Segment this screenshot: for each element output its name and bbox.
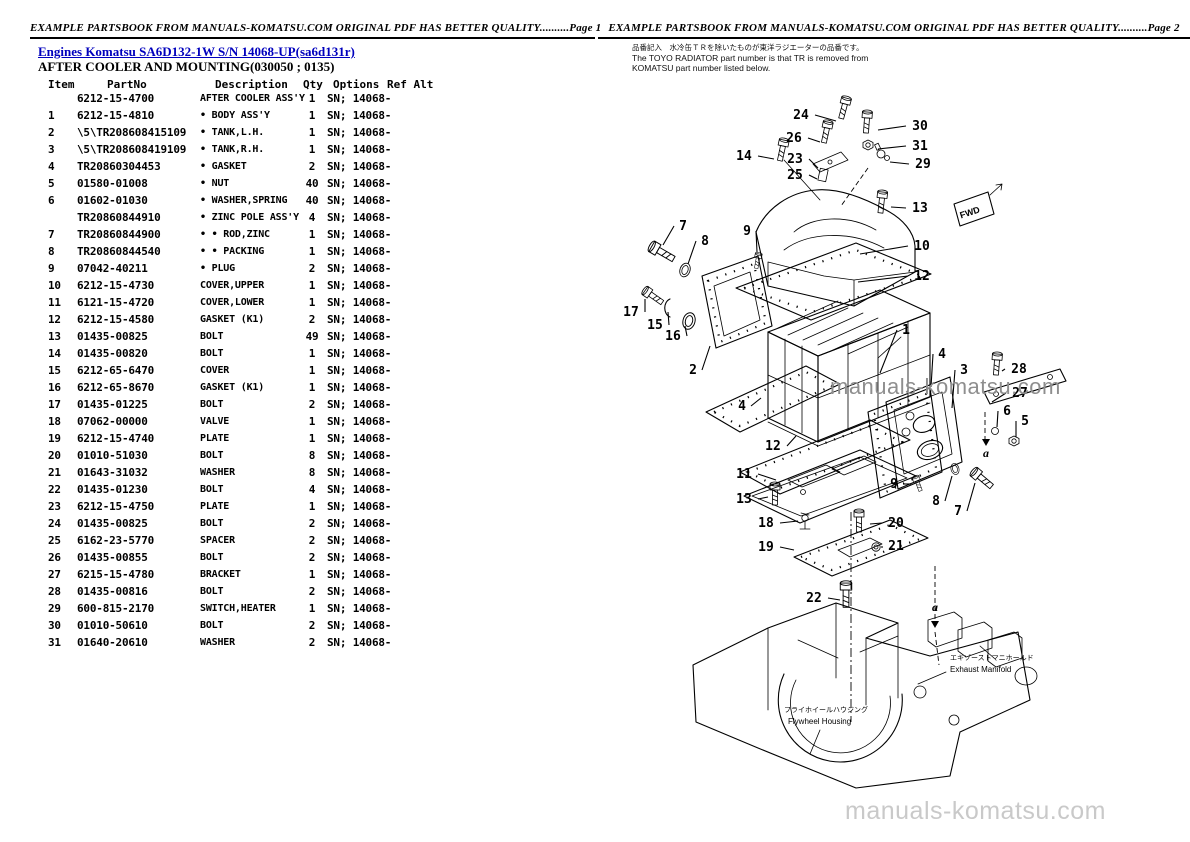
right-page: EXAMPLE PARTSBOOK FROM MANUALS-KOMATSU.C… [598,22,1190,39]
callout-4: 4 [938,347,946,362]
row-item-number: 17 [48,398,61,411]
callout-leader-line [858,276,908,282]
row-qty: 1 [302,381,322,394]
table-row: TR20860844910 • ZINC POLE ASS'Y 4 SN; 14… [30,209,595,226]
left-page-header: EXAMPLE PARTSBOOK FROM MANUALS-KOMATSU.C… [30,22,595,39]
callout-leader-line [997,411,998,427]
diagram-gasket-left [706,366,840,432]
row-description: BOLT [200,620,223,631]
row-qty: 1 [302,228,322,241]
callout-20: 20 [888,516,904,531]
callout-leader-line [1002,369,1005,371]
callout-leader-line [890,162,909,164]
row-options: SN; 14068- [327,92,391,105]
row-qty: 2 [302,398,322,411]
a-marker-arrow [931,621,939,628]
row-item-number: 3 [48,143,54,156]
row-description: • ZINC POLE ASS'Y [200,212,299,223]
row-options: SN; 14068- [327,245,391,258]
table-row: 12 6212-15-4580 GASKET (K1) 2 SN; 14068- [30,311,595,328]
table-row: 3 \5\TR208608419109 • TANK,R.H. 1 SN; 14… [30,141,595,158]
row-part-number: 6215-15-4780 [77,568,154,581]
row-description: BOLT [200,552,223,563]
row-part-number: 01435-00820 [77,347,148,360]
right-page-header: EXAMPLE PARTSBOOK FROM MANUALS-KOMATSU.C… [598,22,1190,39]
row-part-number: 01010-50610 [77,619,148,632]
row-qty: 4 [302,483,322,496]
row-description: BOLT [200,484,223,495]
row-item-number: 25 [48,534,61,547]
row-part-number: TR20860844910 [77,211,161,224]
table-row: 11 6121-15-4720 COVER,LOWER 1 SN; 14068- [30,294,595,311]
row-part-number: 01435-00825 [77,517,148,530]
row-qty: 40 [302,177,322,190]
row-part-number: 01580-01008 [77,177,148,190]
row-description: COVER,LOWER [200,297,264,308]
row-options: SN; 14068- [327,449,391,462]
table-row: 21 01643-31032 WASHER 8 SN; 14068- [30,464,595,481]
row-part-number: 07042-40211 [77,262,148,275]
row-description: AFTER COOLER ASS'Y [200,93,305,104]
callout-24: 24 [793,108,809,123]
row-part-number: TR20860844540 [77,245,161,258]
row-item-number: 23 [48,500,61,513]
row-description: • • PACKING [200,246,264,257]
row-qty: 1 [302,109,322,122]
row-options: SN; 14068- [327,330,391,343]
callout-leader-line [809,175,817,179]
callout-25: 25 [787,168,803,183]
callout-leader-line [663,226,674,245]
table-row: 9 07042-40211 • PLUG 2 SN; 14068- [30,260,595,277]
row-part-number: \5\TR208608419109 [77,143,186,156]
row-part-number: 01010-51030 [77,449,148,462]
table-row: 5 01580-01008 • NUT 40 SN; 14068- [30,175,595,192]
diagram-gasket-upper [736,243,931,320]
row-item-number: 29 [48,602,61,615]
row-part-number: 6212-15-4750 [77,500,154,513]
callout-23: 23 [787,152,803,167]
callout-leader-line [702,346,710,370]
row-description: • NUT [200,178,229,189]
table-row: 24 01435-00825 BOLT 2 SN; 14068- [30,515,595,532]
table-row: 28 01435-00816 BOLT 2 SN; 14068- [30,583,595,600]
row-description: • TANK,R.H. [200,144,264,155]
row-part-number: 6162-23-5770 [77,534,154,547]
table-row: 4 TR20860304453 • GASKET 2 SN; 14068- [30,158,595,175]
row-description: BRACKET [200,569,241,580]
callout-14: 14 [736,149,752,164]
callout-8: 8 [701,234,709,249]
callout-leader-line [758,497,768,499]
row-qty: 1 [302,568,322,581]
flywheel-housing-label-jp: フライホイールハウジング [784,705,868,714]
diagram-aftercooler-core [768,290,930,446]
callout-22: 22 [806,591,822,606]
callout-5: 5 [1021,414,1029,429]
callout-19: 19 [758,540,774,555]
row-qty: 2 [302,517,322,530]
row-description: • TANK,L.H. [200,127,264,138]
row-options: SN; 14068- [327,109,391,122]
callout-31: 31 [912,139,928,154]
row-options: SN; 14068- [327,398,391,411]
table-row: 16 6212-65-8670 GASKET (K1) 1 SN; 14068- [30,379,595,396]
row-part-number: 600-815-2170 [77,602,154,615]
row-item-number: 24 [48,517,61,530]
row-part-number: 6121-15-4720 [77,296,154,309]
diagram-gasket-lower [740,420,910,494]
row-qty: 40 [302,194,322,207]
row-options: SN; 14068- [327,619,391,632]
callout-leader-line [808,138,820,142]
note-line-jp: 品番記入 水冷缶ＴＲを除いたものが東洋ラジエーターの品番です。 [632,42,868,53]
row-qty: 1 [302,296,322,309]
callout-leader-line [878,126,906,130]
row-part-number: 01640-20610 [77,636,148,649]
watermark-center: manuals-komatsu.com [830,374,1061,400]
row-qty: 2 [302,534,322,547]
row-item-number: 12 [48,313,61,326]
callout-11: 11 [736,467,752,482]
row-description: COVER,UPPER [200,280,264,291]
row-part-number: 6212-65-6470 [77,364,154,377]
row-description: BOLT [200,348,223,359]
row-options: SN; 14068- [327,177,391,190]
row-options: SN; 14068- [327,602,391,615]
row-qty: 1 [302,500,322,513]
row-description: SPACER [200,535,235,546]
table-row: 26 01435-00855 BOLT 2 SN; 14068- [30,549,595,566]
row-description: BOLT [200,518,223,529]
row-part-number: TR20860304453 [77,160,161,173]
row-part-number: 01602-01030 [77,194,148,207]
table-row: 14 01435-00820 BOLT 1 SN; 14068- [30,345,595,362]
table-row: 6212-15-4700 AFTER COOLER ASS'Y 1 SN; 14… [30,90,595,107]
row-part-number: 01643-31032 [77,466,148,479]
row-options: SN; 14068- [327,415,391,428]
a-marker: a [932,600,938,614]
table-row: 23 6212-15-4750 PLATE 1 SN; 14068- [30,498,595,515]
row-qty: 1 [302,432,322,445]
callout-leader-line [668,312,669,325]
row-item-number: 31 [48,636,61,649]
watermark-bottom: manuals-komatsu.com [845,797,1106,826]
row-part-number: TR20860844900 [77,228,161,241]
callout-17: 17 [623,305,639,320]
row-item-number: 30 [48,619,61,632]
callout-15: 15 [647,318,663,333]
a-marker: a [983,446,989,460]
row-options: SN; 14068- [327,313,391,326]
callout-6: 6 [1003,404,1011,419]
note-line-en1: The TOYO RADIATOR part number is that TR… [632,53,868,63]
row-part-number: \5\TR208608415109 [77,126,186,139]
callout-layer: 2430263114232925131012789171516214328276… [623,108,1029,606]
fwd-label: FWD [958,204,981,220]
row-options: SN; 14068- [327,279,391,292]
callout-leader-line [828,598,840,600]
table-row: 31 01640-20610 WASHER 2 SN; 14068- [30,634,595,651]
row-part-number: 01435-00855 [77,551,148,564]
row-item-number: 16 [48,381,61,394]
row-item-number: 28 [48,585,61,598]
row-options: SN; 14068- [327,636,391,649]
row-description: GASKET (K1) [200,314,264,325]
callout-12: 12 [765,439,781,454]
callout-leader-line [967,483,975,511]
table-row: 10 6212-15-4730 COVER,UPPER 1 SN; 14068- [30,277,595,294]
row-options: SN; 14068- [327,296,391,309]
row-options: SN; 14068- [327,432,391,445]
exploded-parts-diagram: FWD エキゾーストマニホールド Exhaust Manifold フライホイー… [598,80,1190,842]
row-qty: 8 [302,449,322,462]
row-part-number: 6212-15-4810 [77,109,154,122]
row-item-number: 14 [48,347,61,360]
row-description: GASKET (K1) [200,382,264,393]
row-qty: 2 [302,551,322,564]
row-item-number: 18 [48,415,61,428]
callout-9: 9 [890,477,898,492]
callout-leader-line [758,156,774,159]
table-row: 15 6212-65-6470 COVER 1 SN; 14068- [30,362,595,379]
row-description: • WASHER,SPRING [200,195,287,206]
callout-16: 16 [665,329,681,344]
row-part-number: 07062-00000 [77,415,148,428]
row-options: SN; 14068- [327,347,391,360]
callout-10: 10 [914,239,930,254]
row-options: SN; 14068- [327,211,391,224]
row-description: • GASKET [200,161,247,172]
row-options: SN; 14068- [327,483,391,496]
row-options: SN; 14068- [327,585,391,598]
row-item-number: 1 [48,109,54,122]
table-row: 8 TR20860844540 • • PACKING 1 SN; 14068- [30,243,595,260]
row-options: SN; 14068- [327,381,391,394]
callout-29: 29 [915,157,931,172]
row-item-number: 2 [48,126,54,139]
callout-18: 18 [758,516,774,531]
row-description: COVER [200,365,229,376]
row-part-number: 01435-00825 [77,330,148,343]
row-item-number: 6 [48,194,54,207]
row-options: SN; 14068- [327,228,391,241]
row-description: PLATE [200,433,229,444]
row-qty: 2 [302,160,322,173]
row-description: SWITCH,HEATER [200,603,276,614]
row-options: SN; 14068- [327,364,391,377]
row-qty: 1 [302,245,322,258]
row-item-number: 8 [48,245,54,258]
callout-26: 26 [786,131,802,146]
row-description: PLATE [200,501,229,512]
row-qty: 1 [302,143,322,156]
callout-2: 2 [689,363,697,378]
row-description: VALVE [200,416,229,427]
row-description: • • ROD,ZINC [200,229,270,240]
row-options: SN; 14068- [327,262,391,275]
row-description: BOLT [200,331,223,342]
callout-13: 13 [736,492,752,507]
row-qty: 4 [302,211,322,224]
row-item-number: 26 [48,551,61,564]
row-options: SN; 14068- [327,500,391,513]
diagram-engine-block [693,603,1037,788]
callout-leader-line [880,330,897,373]
table-row: 22 01435-01230 BOLT 4 SN; 14068- [30,481,595,498]
diagram-cover-upper [756,160,915,306]
row-qty: 1 [302,415,322,428]
row-item-number: 22 [48,483,61,496]
fwd-marker: FWD [954,184,1002,226]
section-title: AFTER COOLER AND MOUNTING(030050 ; 0135) [38,59,334,75]
row-item-number: 4 [48,160,54,173]
callout-1: 1 [902,323,910,338]
row-options: SN; 14068- [327,568,391,581]
row-options: SN; 14068- [327,534,391,547]
row-qty: 2 [302,313,322,326]
row-qty: 1 [302,602,322,615]
row-description: • BODY ASS'Y [200,110,270,121]
row-part-number: 6212-15-4740 [77,432,154,445]
table-row: 27 6215-15-4780 BRACKET 1 SN; 14068- [30,566,595,583]
row-part-number: 6212-15-4700 [77,92,154,105]
row-part-number: 01435-01230 [77,483,148,496]
table-row: 2 \5\TR208608415109 • TANK,L.H. 1 SN; 14… [30,124,595,141]
row-description: BOLT [200,399,223,410]
callout-leader-line [780,547,794,550]
row-options: SN; 14068- [327,466,391,479]
row-qty: 1 [302,279,322,292]
row-qty: 2 [302,262,322,275]
engine-model-link[interactable]: Engines Komatsu SA6D132-1W S/N 14068-UP(… [38,44,355,60]
row-part-number: 6212-65-8670 [77,381,154,394]
diagram-tank-lh [702,256,772,348]
callout-9: 9 [743,224,751,239]
exhaust-manifold-label-en: Exhaust Manifold [950,665,1011,674]
row-qty: 1 [302,92,322,105]
row-qty: 2 [302,619,322,632]
row-options: SN; 14068- [327,126,391,139]
callout-7: 7 [679,219,687,234]
row-qty: 49 [302,330,322,343]
row-item-number: 19 [48,432,61,445]
table-row: 25 6162-23-5770 SPACER 2 SN; 14068- [30,532,595,549]
callout-leader-line [780,521,798,523]
row-description: WASHER [200,467,235,478]
left-page: EXAMPLE PARTSBOOK FROM MANUALS-KOMATSU.C… [30,22,595,39]
row-qty: 1 [302,126,322,139]
table-row: 1 6212-15-4810 • BODY ASS'Y 1 SN; 14068- [30,107,595,124]
diagram-centerlines [841,168,985,722]
callout-21: 21 [888,539,904,554]
row-description: WASHER [200,637,235,648]
callout-4: 4 [738,399,746,414]
table-row: 6 01602-01030 • WASHER,SPRING 40 SN; 140… [30,192,595,209]
row-qty: 8 [302,466,322,479]
row-item-number: 11 [48,296,61,309]
row-item-number: 7 [48,228,54,241]
row-options: SN; 14068- [327,160,391,173]
table-row: 13 01435-00825 BOLT 49 SN; 14068- [30,328,595,345]
row-options: SN; 14068- [327,194,391,207]
table-row: 29 600-815-2170 SWITCH,HEATER 1 SN; 1406… [30,600,595,617]
parts-table-body: 6212-15-4700 AFTER COOLER ASS'Y 1 SN; 14… [30,90,595,651]
table-row: 17 01435-01225 BOLT 2 SN; 14068- [30,396,595,413]
a-marker-layer: aa [931,439,990,628]
table-row: 20 01010-51030 BOLT 8 SN; 14068- [30,447,595,464]
row-options: SN; 14068- [327,143,391,156]
callout-leader-line [688,241,696,264]
callout-12: 12 [914,269,930,284]
row-description: BOLT [200,586,223,597]
row-part-number: 01435-01225 [77,398,148,411]
callout-leader-line [787,436,796,446]
note-line-en2: KOMATSU part number listed below. [632,63,868,73]
a-marker-arrow [982,439,990,446]
row-qty: 1 [302,364,322,377]
row-part-number: 6212-15-4730 [77,279,154,292]
row-item-number: 5 [48,177,54,190]
row-item-number: 27 [48,568,61,581]
flywheel-housing-label-en: Flywheel Housing [788,717,851,726]
diagram-plate-19 [794,520,928,576]
table-row: 18 07062-00000 VALVE 1 SN; 14068- [30,413,595,430]
callout-leader-line [685,326,687,336]
callout-leader-line [751,398,761,406]
callout-leader-line [891,207,906,208]
row-item-number: 20 [48,449,61,462]
callout-leader-line [945,476,952,501]
partsbook-page: { "colors": { "link_blue": "#0000bd", "w… [0,0,1190,842]
callout-leader-line [758,474,776,480]
row-options: SN; 14068- [327,551,391,564]
callout-30: 30 [912,119,928,134]
row-item-number: 13 [48,330,61,343]
radiator-note: 品番記入 水冷缶ＴＲを除いたものが東洋ラジエーターの品番です。 The TOYO… [632,42,868,73]
callout-8: 8 [932,494,940,509]
row-item-number: 9 [48,262,54,275]
exhaust-manifold-label-jp: エキゾーストマニホールド [950,654,1034,662]
row-item-number: 15 [48,364,61,377]
callout-7: 7 [954,504,962,519]
row-description: • PLUG [200,263,235,274]
table-row: 30 01010-50610 BOLT 2 SN; 14068- [30,617,595,634]
row-part-number: 6212-15-4580 [77,313,154,326]
table-row: 7 TR20860844900 • • ROD,ZINC 1 SN; 14068… [30,226,595,243]
row-description: BOLT [200,450,223,461]
row-qty: 2 [302,636,322,649]
callout-leader-line [878,146,906,149]
row-part-number: 01435-00816 [77,585,148,598]
row-item-number: 21 [48,466,61,479]
row-qty: 1 [302,347,322,360]
row-options: SN; 14068- [327,517,391,530]
table-row: 19 6212-15-4740 PLATE 1 SN; 14068- [30,430,595,447]
callout-13: 13 [912,201,928,216]
row-item-number: 10 [48,279,61,292]
callout-leader-line [809,159,818,168]
row-qty: 2 [302,585,322,598]
